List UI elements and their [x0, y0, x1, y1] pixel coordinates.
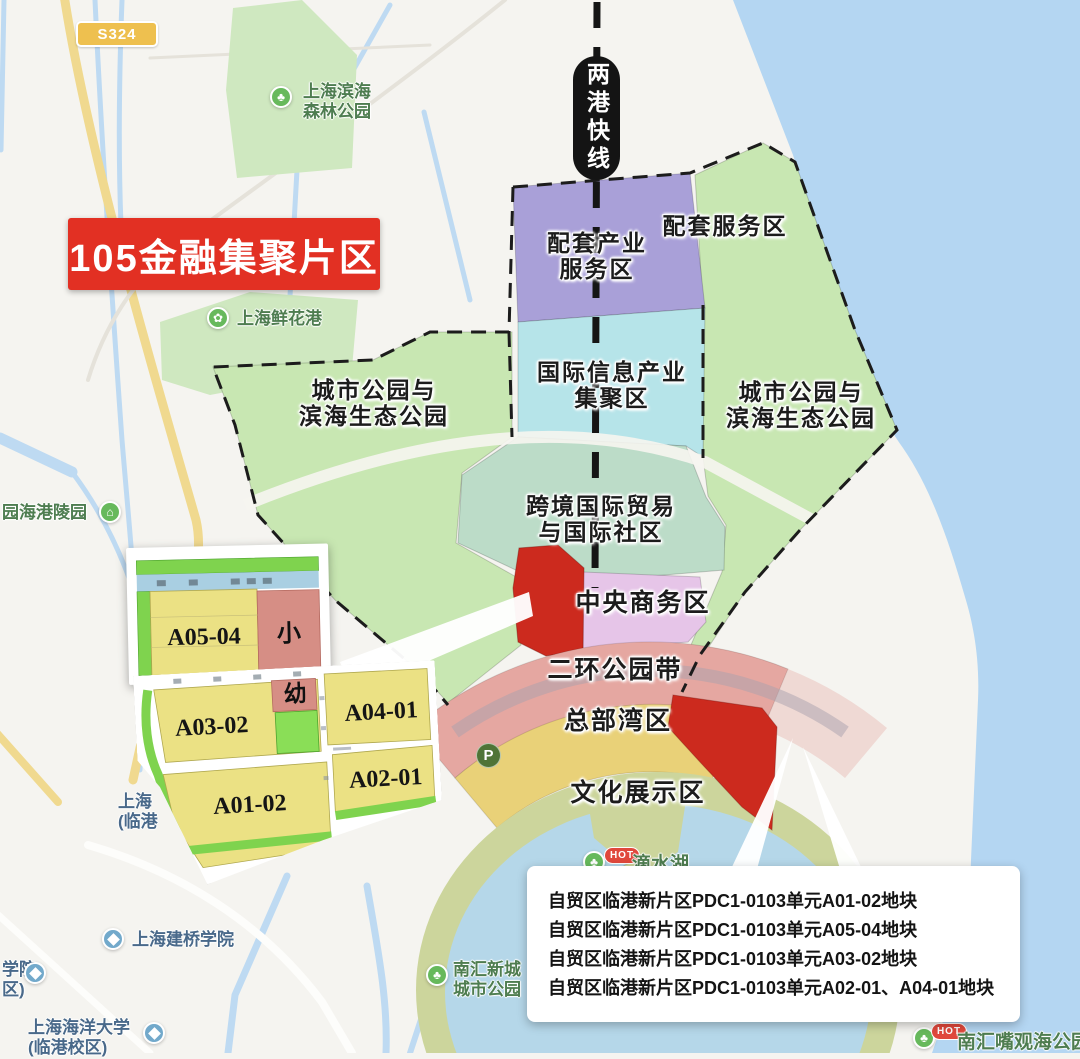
park-people-icon: ♣: [426, 964, 448, 986]
tree-icon: ♣: [270, 86, 292, 108]
plot-callout-box: 自贸区临港新片区PDC1-0103单元A01-02地块 自贸区临港新片区PDC1…: [527, 866, 1020, 1022]
road-badge-s324: S324: [76, 21, 158, 47]
plot-label-xiao: 小: [277, 620, 302, 648]
zone-label-support-service: 配套服务区: [663, 213, 788, 239]
transit-line-label: 两港快线: [580, 62, 614, 174]
zone-label-city-park-left: 城市公园与滨海生态公园: [299, 377, 449, 430]
zone-label-cbd: 中央商务区: [575, 589, 710, 618]
parking-icon: P: [476, 743, 501, 768]
poi-nanhui-new-city-park: 南汇新城城市公园: [453, 960, 521, 1001]
graduation-cap-icon: [143, 1022, 165, 1044]
graduation-cap-icon: [102, 928, 124, 950]
poi-forest-park: 上海滨海森林公园: [303, 82, 371, 123]
flower-icon: ✿: [207, 307, 229, 329]
plot-label-a03-02: A03-02: [174, 712, 249, 742]
inset-card-top: A05-04 小: [126, 543, 331, 685]
plot-label-a02-01: A02-01: [348, 764, 423, 794]
zone-label-cross-border: 跨境国际贸易与国际社区: [526, 493, 676, 546]
zone-label-info-industry: 国际信息产业集聚区: [537, 359, 687, 412]
graduation-cap-icon: [24, 962, 46, 984]
banner-title: 105金融集聚片区: [68, 218, 380, 290]
plot-label-a05-04: A05-04: [167, 623, 241, 651]
poi-partial-lingang: 上海(临港: [118, 792, 158, 833]
zone-label-park-belt: 二环公园带: [547, 656, 682, 685]
zone-label-hq-bay: 总部湾区: [564, 707, 672, 736]
plot-label-a04-01: A04-01: [344, 697, 419, 727]
zone-label-support-industry: 配套产业服务区: [547, 230, 647, 283]
callout-line: 自贸区临港新片区PDC1-0103单元A05-04地块: [548, 916, 1020, 945]
poi-nanhui-mouth-park: 南汇嘴观海公园: [957, 1032, 1080, 1055]
plot-label-you: 幼: [283, 680, 307, 707]
callout-line: 自贸区临港新片区PDC1-0103单元A01-02地块: [548, 887, 1020, 916]
poi-jianqiao-college: 上海建桥学院: [132, 930, 234, 950]
memorial-icon: ⌂: [99, 501, 121, 523]
zone-label-city-park-right: 城市公园与滨海生态公园: [726, 379, 876, 432]
transit-line-capsule: 两港快线: [573, 56, 620, 180]
plot-label-a01-02: A01-02: [213, 790, 288, 820]
poi-flower-port: 上海鲜花港: [237, 309, 322, 329]
zone-label-culture: 文化展示区: [570, 779, 705, 808]
poi-cemetery: 园海港陵园: [2, 503, 87, 523]
callout-line: 自贸区临港新片区PDC1-0103单元A02-01、A04-01地块: [548, 974, 1020, 1003]
callout-line: 自贸区临港新片区PDC1-0103单元A03-02地块: [548, 945, 1020, 974]
map-screenshot: { "banner": { "title": "105金融集聚片区" }, "t…: [0, 0, 1080, 1053]
